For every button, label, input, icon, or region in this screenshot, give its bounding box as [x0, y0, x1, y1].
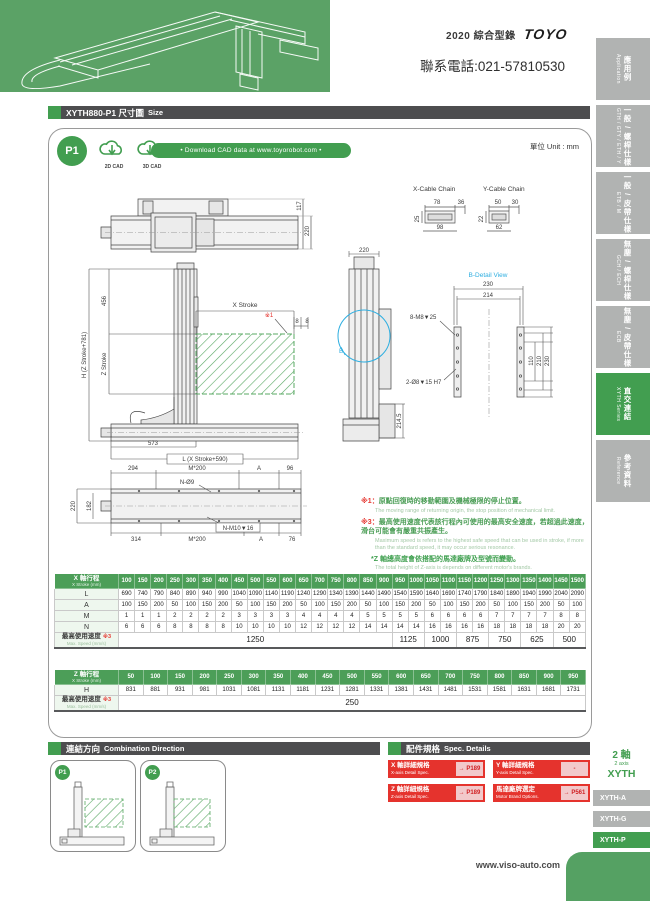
cell: 1	[151, 611, 167, 622]
cell: 150	[456, 600, 472, 611]
cable-chain-drawing: X-Cable Chain 78 36 25 98 Y-Cable Chain …	[401, 179, 581, 239]
cell: 1290	[312, 589, 328, 600]
ref-mark-1: ※1	[265, 312, 274, 319]
dim-36: 36	[458, 200, 465, 206]
combination-title-en: Combination Direction	[104, 744, 184, 753]
cell: 740	[135, 589, 151, 600]
stroke-col: 350	[199, 574, 215, 589]
cell: 10	[263, 622, 279, 633]
spec-button-1[interactable]: Y 軸詳細規格Y-axis Detail Spec.-	[493, 760, 590, 778]
dim-214-5: 214.5	[397, 413, 403, 429]
cell: 8	[199, 622, 215, 633]
stroke-col: 600	[279, 574, 295, 589]
hero-illustration	[0, 0, 330, 92]
spec-title-en: Spec. Details	[444, 744, 491, 753]
sidebar-tab-application[interactable]: 應用例Application	[596, 38, 650, 100]
stroke-col: 850	[360, 574, 376, 589]
cell: 1990	[537, 589, 553, 600]
cell: 1081	[241, 685, 266, 696]
stroke-col: 550	[364, 670, 389, 685]
cell: 10	[279, 622, 295, 633]
contact-phone: 聯系電話:021-57810530	[420, 55, 565, 75]
stroke-col: 800	[487, 670, 512, 685]
cell: 18	[489, 622, 505, 633]
stroke-col: 550	[263, 574, 279, 589]
cell: 1640	[424, 589, 440, 600]
dim-220-side: 220	[359, 248, 370, 254]
max-speed-value: 250	[119, 696, 586, 711]
max-speed-row: 最高使用速度 ※3Max. Speed (mm/s)250	[55, 696, 586, 711]
cell: 1090	[247, 589, 263, 600]
cell: 840	[167, 589, 183, 600]
stroke-col: 950	[392, 574, 408, 589]
cell: 1481	[438, 685, 463, 696]
green-square-icon	[388, 742, 401, 755]
cell: 2	[167, 611, 183, 622]
dim-573: 573	[148, 441, 159, 447]
model-tab-xyth-a[interactable]: XYTH-A	[593, 790, 650, 806]
dim-314: 314	[131, 537, 142, 543]
y-cable-chain-label: Y-Cable Chain	[483, 186, 525, 193]
cell: 981	[192, 685, 217, 696]
axis-count-zh: 2 軸	[593, 750, 650, 761]
cell: 200	[279, 600, 295, 611]
max-speed-value: 1000	[424, 633, 456, 648]
dimension-drawing-panel: P1 2D CAD 3D CAD • Download CAD data at …	[48, 128, 592, 738]
sidebar-tab-xyth[interactable]: 直交連結XYTH Series	[596, 373, 650, 435]
dim-50: 50	[495, 200, 502, 206]
spec-button-0[interactable]: X 軸詳細規格X-axis Detail Spec.→ P189	[388, 760, 485, 778]
stroke-col: 500	[340, 670, 365, 685]
cell: 3	[231, 611, 247, 622]
cell: 150	[199, 600, 215, 611]
table-row: H831881931981103110811131118112311281133…	[55, 685, 586, 696]
z-axis-stroke-table: Z 軸行程X Stroke (mm)5010015020025030035040…	[54, 669, 586, 712]
stroke-header-label: X 軸行程X Stroke (mm)	[55, 574, 119, 589]
page-title-en: Size	[148, 108, 163, 117]
cell: 990	[215, 589, 231, 600]
cell: 2	[183, 611, 199, 622]
cell: 14	[360, 622, 376, 633]
page-title-bar: XYTH880-P1 尺寸圖 Size	[48, 106, 590, 119]
cell: 100	[505, 600, 521, 611]
cell: 1340	[328, 589, 344, 600]
cell: 1181	[291, 685, 316, 696]
dim-456: 456	[102, 295, 108, 306]
cell: 10	[231, 622, 247, 633]
axis-group-label: 2 軸 2 axis XYTH	[593, 750, 650, 780]
dim-220-base: 220	[71, 500, 77, 511]
stroke-col: 300	[183, 574, 199, 589]
max-speed-row: 最高使用速度 ※3Max. Speed (mm/s)12501125100087…	[55, 633, 586, 648]
cell: 18	[521, 622, 537, 633]
stroke-col: 950	[561, 670, 586, 685]
stroke-col: 200	[151, 574, 167, 589]
max-speed-value: 750	[489, 633, 521, 648]
cell: 7	[537, 611, 553, 622]
cell: 1840	[489, 589, 505, 600]
stroke-col: 450	[315, 670, 340, 685]
combination-card-p1: P1	[50, 760, 136, 852]
cell: 4	[296, 611, 312, 622]
dim-m200-top: M*200	[188, 466, 206, 472]
cell: 1390	[344, 589, 360, 600]
cell: 931	[168, 685, 193, 696]
cell: 1531	[463, 685, 488, 696]
cad-2d-download[interactable]: 2D CAD	[97, 137, 131, 170]
stroke-col: 700	[312, 574, 328, 589]
spec-button-3[interactable]: 馬達廠牌選定Motor Brand Options.→ P561	[493, 784, 590, 802]
cell: 4	[312, 611, 328, 622]
cell: 1031	[217, 685, 242, 696]
cell: 4	[344, 611, 360, 622]
combination-direction-bar: 連結方向 Combination Direction	[48, 742, 380, 755]
p1-card-badge: P1	[55, 765, 70, 780]
sidebar-tab-ecb[interactable]: 無塵 / 皮帶仕樣ECB	[596, 306, 650, 368]
model-tab-xyth-g[interactable]: XYTH-G	[593, 811, 650, 827]
cell: 6	[119, 622, 135, 633]
cell: 5	[376, 611, 392, 622]
cell: 100	[183, 600, 199, 611]
cell: 8	[215, 622, 231, 633]
max-speed-value: 625	[521, 633, 553, 648]
cell: 1131	[266, 685, 291, 696]
dim-230: 230	[483, 282, 494, 288]
callout-n-o9: N-Ø9	[180, 480, 195, 486]
cell: 940	[199, 589, 215, 600]
dim-8b: 8	[305, 319, 309, 325]
stroke-col: 1500	[569, 574, 585, 589]
dim-78: 78	[434, 200, 441, 206]
stroke-col: 800	[344, 574, 360, 589]
stroke-col: 1200	[473, 574, 489, 589]
cell: 20	[569, 622, 585, 633]
cell: 50	[553, 600, 569, 611]
dim-230v: 230	[545, 355, 551, 366]
callout-n-m10: N-M10▼16	[223, 526, 254, 532]
cell: 8	[553, 611, 569, 622]
cloud-download-icon	[97, 137, 127, 159]
cell: 1231	[315, 685, 340, 696]
cell: 1431	[413, 685, 438, 696]
green-square-icon	[48, 742, 61, 755]
table-row: A100150200501001502005010015020050100150…	[55, 600, 586, 611]
note-1: ※1：原點回復時的移動範圍及機械極限的停止位置。	[361, 497, 589, 507]
cell: 150	[328, 600, 344, 611]
cell: 16	[424, 622, 440, 633]
cell: 50	[424, 600, 440, 611]
dim-30: 30	[512, 200, 519, 206]
p1-badge: P1	[57, 136, 87, 166]
stroke-col: 650	[413, 670, 438, 685]
table-row: M11122223333444455556666777788	[55, 611, 586, 622]
max-speed-value: 1125	[392, 633, 424, 648]
cell: 1331	[364, 685, 389, 696]
dim-182: 182	[87, 500, 93, 511]
cell: 200	[215, 600, 231, 611]
cell: 100	[569, 600, 585, 611]
cell: 790	[151, 589, 167, 600]
cell: 2090	[569, 589, 585, 600]
cell: 1581	[487, 685, 512, 696]
cell: 1381	[389, 685, 414, 696]
cell: 16	[440, 622, 456, 633]
x-cable-chain-label: X-Cable Chain	[413, 186, 456, 193]
cell: 1590	[408, 589, 424, 600]
dim-220: 220	[305, 225, 311, 236]
cell: 18	[537, 622, 553, 633]
cell: 7	[521, 611, 537, 622]
stroke-col: 150	[168, 670, 193, 685]
stroke-col: 250	[167, 574, 183, 589]
stroke-col: 1050	[424, 574, 440, 589]
stroke-col: 400	[215, 574, 231, 589]
p1-schematic	[54, 779, 132, 849]
catalog-title: 2020 綜合型錄	[446, 27, 516, 42]
spec-button-2[interactable]: Z 軸詳細規格Z-axis Detail Spec.→ P189	[388, 784, 485, 802]
p2-schematic	[144, 779, 222, 849]
cell: 1	[135, 611, 151, 622]
cell: 200	[537, 600, 553, 611]
cell: 200	[344, 600, 360, 611]
b-view-marker: B	[339, 348, 343, 355]
b-detail-title: B-Detail View	[469, 272, 508, 279]
dim-x-stroke: X Stroke	[233, 302, 258, 309]
stroke-col: 50	[119, 670, 144, 685]
stroke-col: 450	[231, 574, 247, 589]
stroke-col: 100	[143, 670, 168, 685]
max-speed-value: 500	[553, 633, 585, 648]
stroke-col: 500	[247, 574, 263, 589]
combination-card-p2: P2	[140, 760, 226, 852]
x-axis-stroke-table: X 軸行程X Stroke (mm)1001502002503003504004…	[54, 573, 586, 649]
drawing-notes: ※1：原點回復時的移動範圍及機械極限的停止位置。 The moving rang…	[361, 497, 589, 575]
stroke-col: 1100	[440, 574, 456, 589]
sidebar-tab-gch[interactable]: 無塵 / 螺桿仕樣GCH / ECH	[596, 239, 650, 301]
cell: 2	[215, 611, 231, 622]
cell: 1681	[536, 685, 561, 696]
dim-76: 76	[289, 537, 296, 543]
cell: 3	[279, 611, 295, 622]
base-rail-drawing: 294 M*200 A 96 N-Ø9 220 182 314 M*200 N-…	[69, 459, 359, 544]
stroke-col: 100	[119, 574, 135, 589]
cell: 5	[360, 611, 376, 622]
dim-8a: 8	[295, 319, 299, 325]
cell: 50	[296, 600, 312, 611]
dim-110: 110	[529, 356, 535, 366]
cell: 2040	[553, 589, 569, 600]
cell: 1	[119, 611, 135, 622]
cell: 150	[521, 600, 537, 611]
cell: 16	[473, 622, 489, 633]
combination-title-zh: 連結方向	[66, 743, 100, 755]
cell: 50	[167, 600, 183, 611]
cell: 1240	[296, 589, 312, 600]
cell: 1731	[561, 685, 586, 696]
axis-count-en: 2 axis	[593, 761, 650, 768]
cell: 1631	[512, 685, 537, 696]
cell: 100	[440, 600, 456, 611]
stroke-col: 700	[438, 670, 463, 685]
cell: 12	[328, 622, 344, 633]
cell: 12	[312, 622, 328, 633]
cell: 20	[553, 622, 569, 633]
note-3-en: Maximum speed is refers to the highest s…	[375, 538, 589, 552]
cell: 690	[119, 589, 135, 600]
cell: 1890	[505, 589, 521, 600]
front-view-drawing: H (Z Stroke+781) 456 Z Stroke X Stroke ※…	[79, 259, 369, 471]
green-square-icon	[48, 106, 61, 119]
sidebar-tab-etb[interactable]: 一般 / 皮帶仕樣ETB / M	[596, 172, 650, 234]
cad-3d-label: 3D CAD	[135, 164, 169, 170]
b-detail-drawing: B-Detail View 230 214 8-M8▼25 2-Ø8▼15 H7…	[404, 269, 569, 424]
cell: 16	[456, 622, 472, 633]
model-tab-xyth-p[interactable]: XYTH-P	[593, 832, 650, 848]
cell: 200	[408, 600, 424, 611]
callout-2-o8: 2-Ø8▼15 H7	[406, 380, 442, 386]
stroke-col: 150	[135, 574, 151, 589]
dim-210: 210	[537, 355, 543, 366]
stroke-col: 650	[296, 574, 312, 589]
cell: 1190	[279, 589, 295, 600]
dim-z-stroke: Z Stroke	[102, 352, 108, 375]
cell: 6	[135, 622, 151, 633]
spec-details-bar: 配件規格 Spec. Details	[388, 742, 590, 755]
dim-m200-bottom: M*200	[188, 537, 206, 543]
cell: 1490	[376, 589, 392, 600]
cell: 6	[473, 611, 489, 622]
cell: 12	[344, 622, 360, 633]
stroke-col: 200	[192, 670, 217, 685]
sidebar-tab-reference[interactable]: 參考資料Reference	[596, 440, 650, 502]
cell: 150	[263, 600, 279, 611]
cell: 6	[424, 611, 440, 622]
gantry-wireframe-art	[0, 0, 330, 92]
dim-25: 25	[415, 215, 421, 222]
cell: 14	[408, 622, 424, 633]
cell: 50	[360, 600, 376, 611]
stroke-col: 1350	[521, 574, 537, 589]
stroke-col: 400	[291, 670, 316, 685]
stroke-col: 300	[241, 670, 266, 685]
cell: 881	[143, 685, 168, 696]
table-row: N666888810101010121212121414141416161616…	[55, 622, 586, 633]
stroke-col: 250	[217, 670, 242, 685]
page-link[interactable]: → P189	[456, 762, 483, 776]
stroke-col: 750	[463, 670, 488, 685]
dim-h: H (Z Stroke+781)	[82, 332, 88, 378]
cell: 5	[392, 611, 408, 622]
stroke-col: 600	[389, 670, 414, 685]
series-name: XYTH	[593, 768, 650, 780]
callout-8-m8: 8-M8▼25	[410, 315, 437, 321]
cell: 100	[376, 600, 392, 611]
dim-a-top: A	[257, 466, 261, 472]
page-link[interactable]: -	[561, 762, 588, 776]
cell: 200	[473, 600, 489, 611]
dim-117: 117	[297, 201, 303, 211]
cell: 14	[376, 622, 392, 633]
cell: 6	[151, 622, 167, 633]
note-z-axis: *Z 軸總高度會依搭配的馬達廠牌及型號而變動。	[371, 555, 589, 565]
dim-62: 62	[496, 225, 503, 231]
max-speed-value: 1250	[119, 633, 393, 648]
website-url: www.viso-auto.com	[476, 860, 560, 870]
cell: 1440	[360, 589, 376, 600]
stroke-header-label: Z 軸行程X Stroke (mm)	[55, 670, 119, 685]
cell: 4	[328, 611, 344, 622]
cell: 18	[505, 622, 521, 633]
stroke-col: 1400	[537, 574, 553, 589]
stroke-col: 900	[536, 670, 561, 685]
spec-title-zh: 配件規格	[406, 743, 440, 755]
dim-214: 214	[483, 293, 494, 299]
cell: 1281	[340, 685, 365, 696]
page-link[interactable]: → P189	[456, 786, 483, 800]
dim-a-bottom: A	[259, 537, 263, 543]
page-title: XYTH880-P1 尺寸圖	[66, 107, 144, 119]
dim-98: 98	[437, 225, 444, 231]
cell: 7	[505, 611, 521, 622]
download-cad-pill[interactable]: • Download CAD data at www.toyorobot.com…	[151, 143, 351, 158]
cell: 150	[392, 600, 408, 611]
stroke-col: 1300	[505, 574, 521, 589]
cell: 7	[489, 611, 505, 622]
stroke-col: 750	[328, 574, 344, 589]
cell: 5	[408, 611, 424, 622]
stroke-col: 1450	[553, 574, 569, 589]
cell: 50	[489, 600, 505, 611]
cell: 12	[296, 622, 312, 633]
cell: 6	[456, 611, 472, 622]
toyo-logo: TOYO	[522, 26, 568, 42]
cell: 8	[569, 611, 585, 622]
cell: 14	[392, 622, 408, 633]
cell: 100	[247, 600, 263, 611]
sidebar-tab-gth[interactable]: 一般 / 螺桿仕樣GTH / GTY / ETH / Y	[596, 105, 650, 167]
cell: 8	[167, 622, 183, 633]
cell: 8	[183, 622, 199, 633]
p2-card-badge: P2	[145, 765, 160, 780]
page-link[interactable]: → P561	[561, 786, 588, 800]
cell: 1040	[231, 589, 247, 600]
cad-2d-label: 2D CAD	[97, 164, 131, 170]
cell: 2	[199, 611, 215, 622]
plan-view-drawing: 117 220	[99, 191, 369, 253]
cell: 50	[231, 600, 247, 611]
unit-label: 單位 Unit : mm	[530, 141, 579, 152]
catalog-header: 2020 綜合型錄 TOYO	[446, 26, 567, 42]
stroke-col: 350	[266, 670, 291, 685]
cell: 200	[151, 600, 167, 611]
max-speed-value: 875	[456, 633, 488, 648]
cell: 1740	[456, 589, 472, 600]
stroke-col: 1250	[489, 574, 505, 589]
cell: 100	[312, 600, 328, 611]
cell: 6	[440, 611, 456, 622]
cell: 1540	[392, 589, 408, 600]
cell: 1940	[521, 589, 537, 600]
cell: 1790	[473, 589, 489, 600]
cell: 1690	[440, 589, 456, 600]
dim-22: 22	[479, 215, 485, 222]
corner-decoration	[566, 852, 650, 901]
note-z-axis-en: The total height of Z-axis is depends on…	[375, 565, 589, 572]
cell: 890	[183, 589, 199, 600]
dim-294: 294	[128, 466, 139, 472]
cell: 150	[135, 600, 151, 611]
cell: 1140	[263, 589, 279, 600]
